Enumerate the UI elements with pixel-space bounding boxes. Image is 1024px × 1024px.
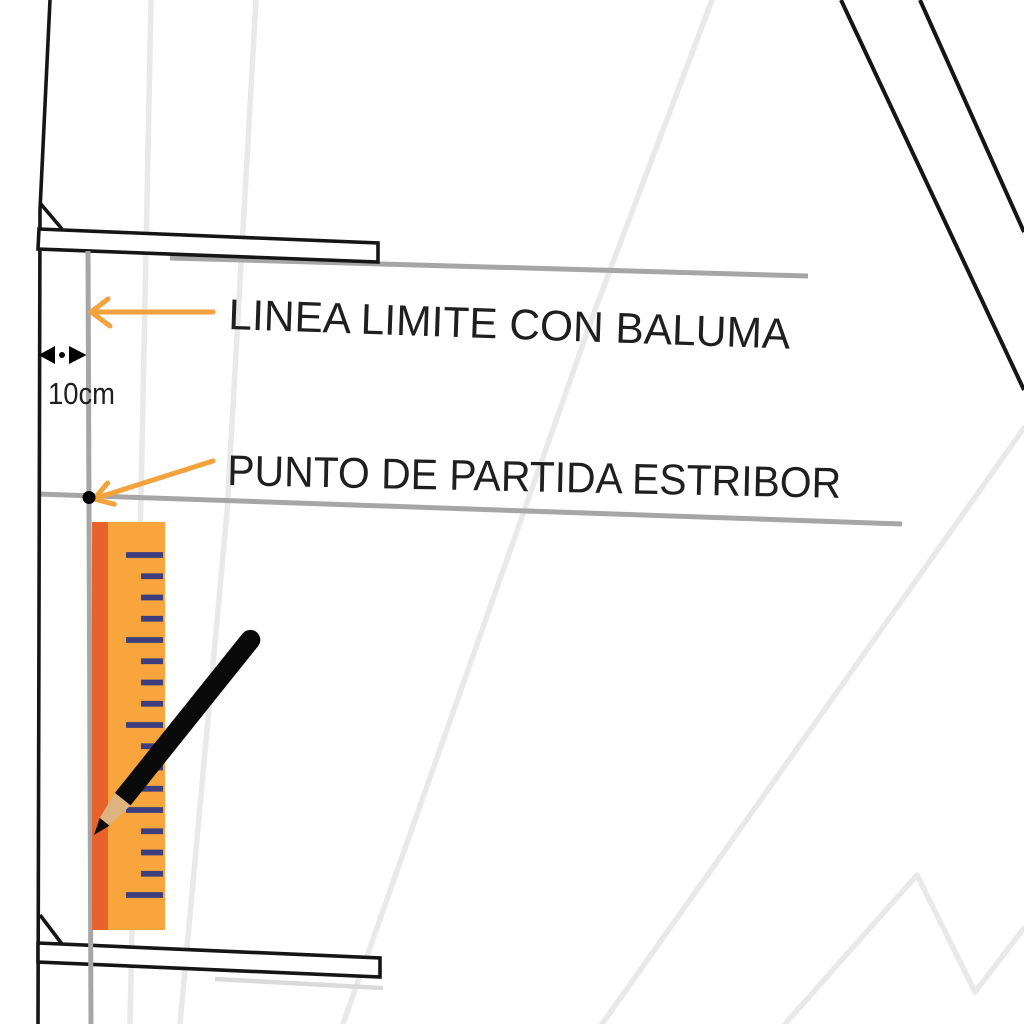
double-arrow-icon-dot bbox=[59, 352, 65, 358]
crease-line bbox=[180, 0, 256, 1024]
annotation-limit-line: LINEA LIMITE CON BALUMA bbox=[91, 291, 791, 359]
gap-measurement: 10cm bbox=[39, 346, 116, 411]
upper-guide-line bbox=[170, 258, 808, 276]
ruler bbox=[92, 522, 165, 930]
guide-lines bbox=[38, 258, 902, 988]
limit-vertical-line bbox=[88, 251, 91, 1024]
top-corner-fold-line bbox=[40, 203, 62, 229]
diagram-canvas: LINEA LIMITE CON BALUMA 10cm PUNTO DE PA… bbox=[0, 0, 1024, 1024]
bottom-corner-fold-line bbox=[40, 915, 62, 944]
start-point-dot bbox=[83, 491, 96, 504]
crease-line bbox=[785, 875, 1024, 1024]
start-point-label: PUNTO DE PARTIDA ESTRIBOR bbox=[227, 447, 842, 508]
sail-marking-diagram: LINEA LIMITE CON BALUMA 10cm PUNTO DE PA… bbox=[0, 0, 1024, 1024]
ruler-stripe bbox=[92, 522, 108, 930]
down-left-arrow-shaft bbox=[98, 461, 213, 498]
sail-left-edge-line bbox=[38, 0, 50, 1024]
limit-line-label: LINEA LIMITE CON BALUMA bbox=[228, 291, 792, 359]
leech-edge-line bbox=[841, 0, 1024, 390]
double-arrow-icon-right bbox=[69, 346, 87, 364]
gap-measurement-label: 10cm bbox=[48, 376, 115, 411]
